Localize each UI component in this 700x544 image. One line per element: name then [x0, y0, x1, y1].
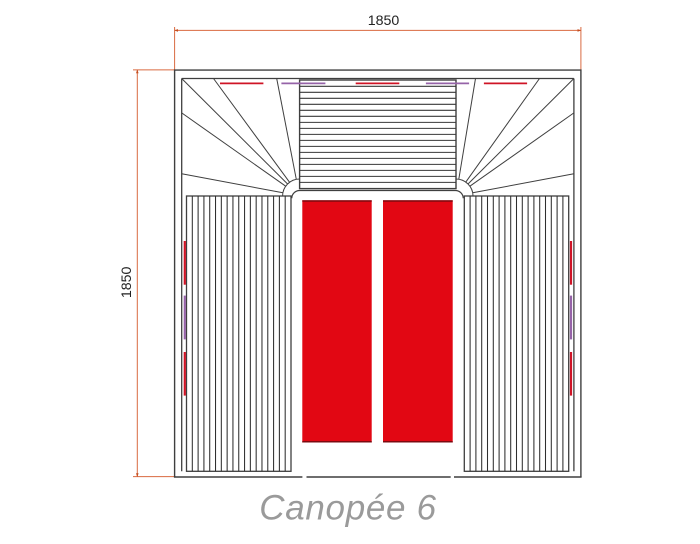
svg-text:1850: 1850 [368, 13, 400, 29]
svg-text:Canopée 6: Canopée 6 [259, 489, 437, 528]
svg-text:1850: 1850 [119, 267, 135, 299]
